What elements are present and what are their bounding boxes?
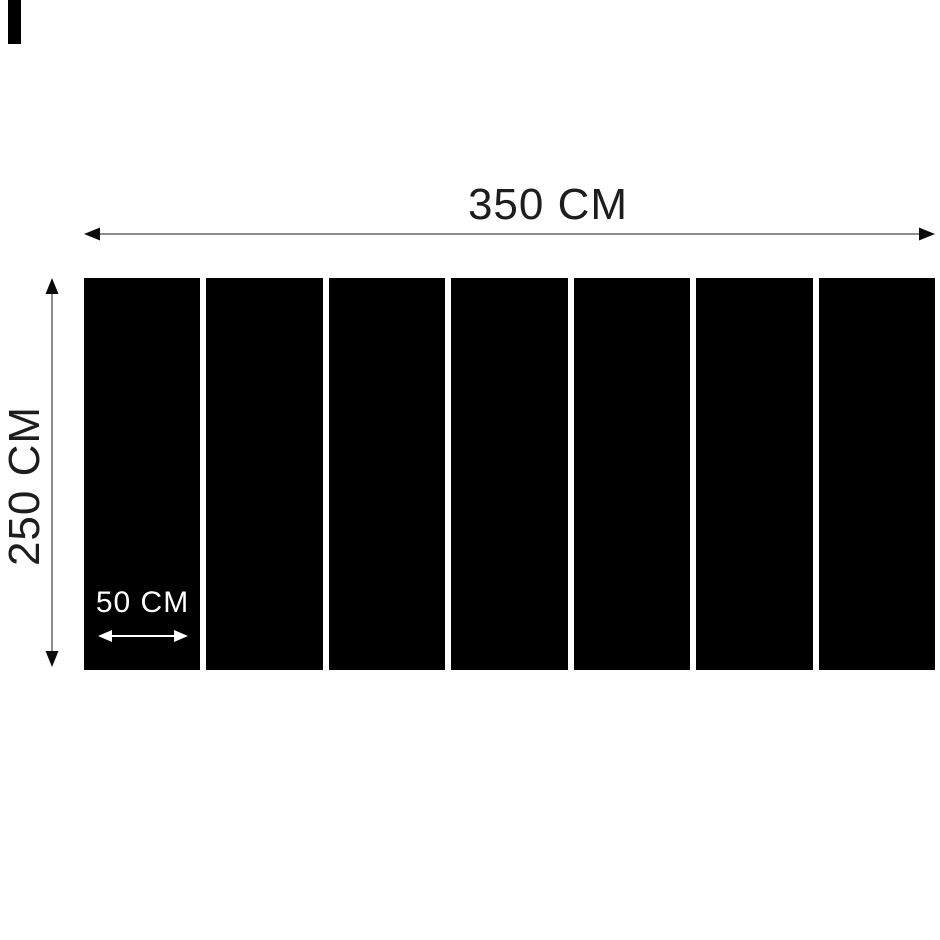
panel-4 [451,278,567,670]
total-height-label: 250 CM [3,406,47,566]
panel-row [84,278,935,670]
corner-watermark-fragment [8,0,21,44]
height-dimension-arrow [44,278,60,667]
arrowhead-left-icon [84,228,100,241]
slat-width-dimension-arrow [98,629,188,643]
panel-7 [819,278,935,670]
product-dimension-diagram: 350 CM 250 CM 50 CM [0,0,940,940]
panel-6 [696,278,812,670]
slat-arrowhead-right-icon [174,630,188,642]
total-width-label: 350 CM [468,183,628,227]
panel-3 [329,278,445,670]
panel-2 [206,278,322,670]
first-slat-annotation: 50 CM [84,278,201,670]
panel-5 [574,278,690,670]
arrowhead-down-icon [46,651,59,667]
arrowhead-right-icon [919,228,935,241]
arrowhead-up-icon [46,278,59,294]
width-dimension-arrow [84,226,935,242]
slat-width-label: 50 CM [96,588,189,618]
slat-arrowhead-left-icon [98,630,112,642]
